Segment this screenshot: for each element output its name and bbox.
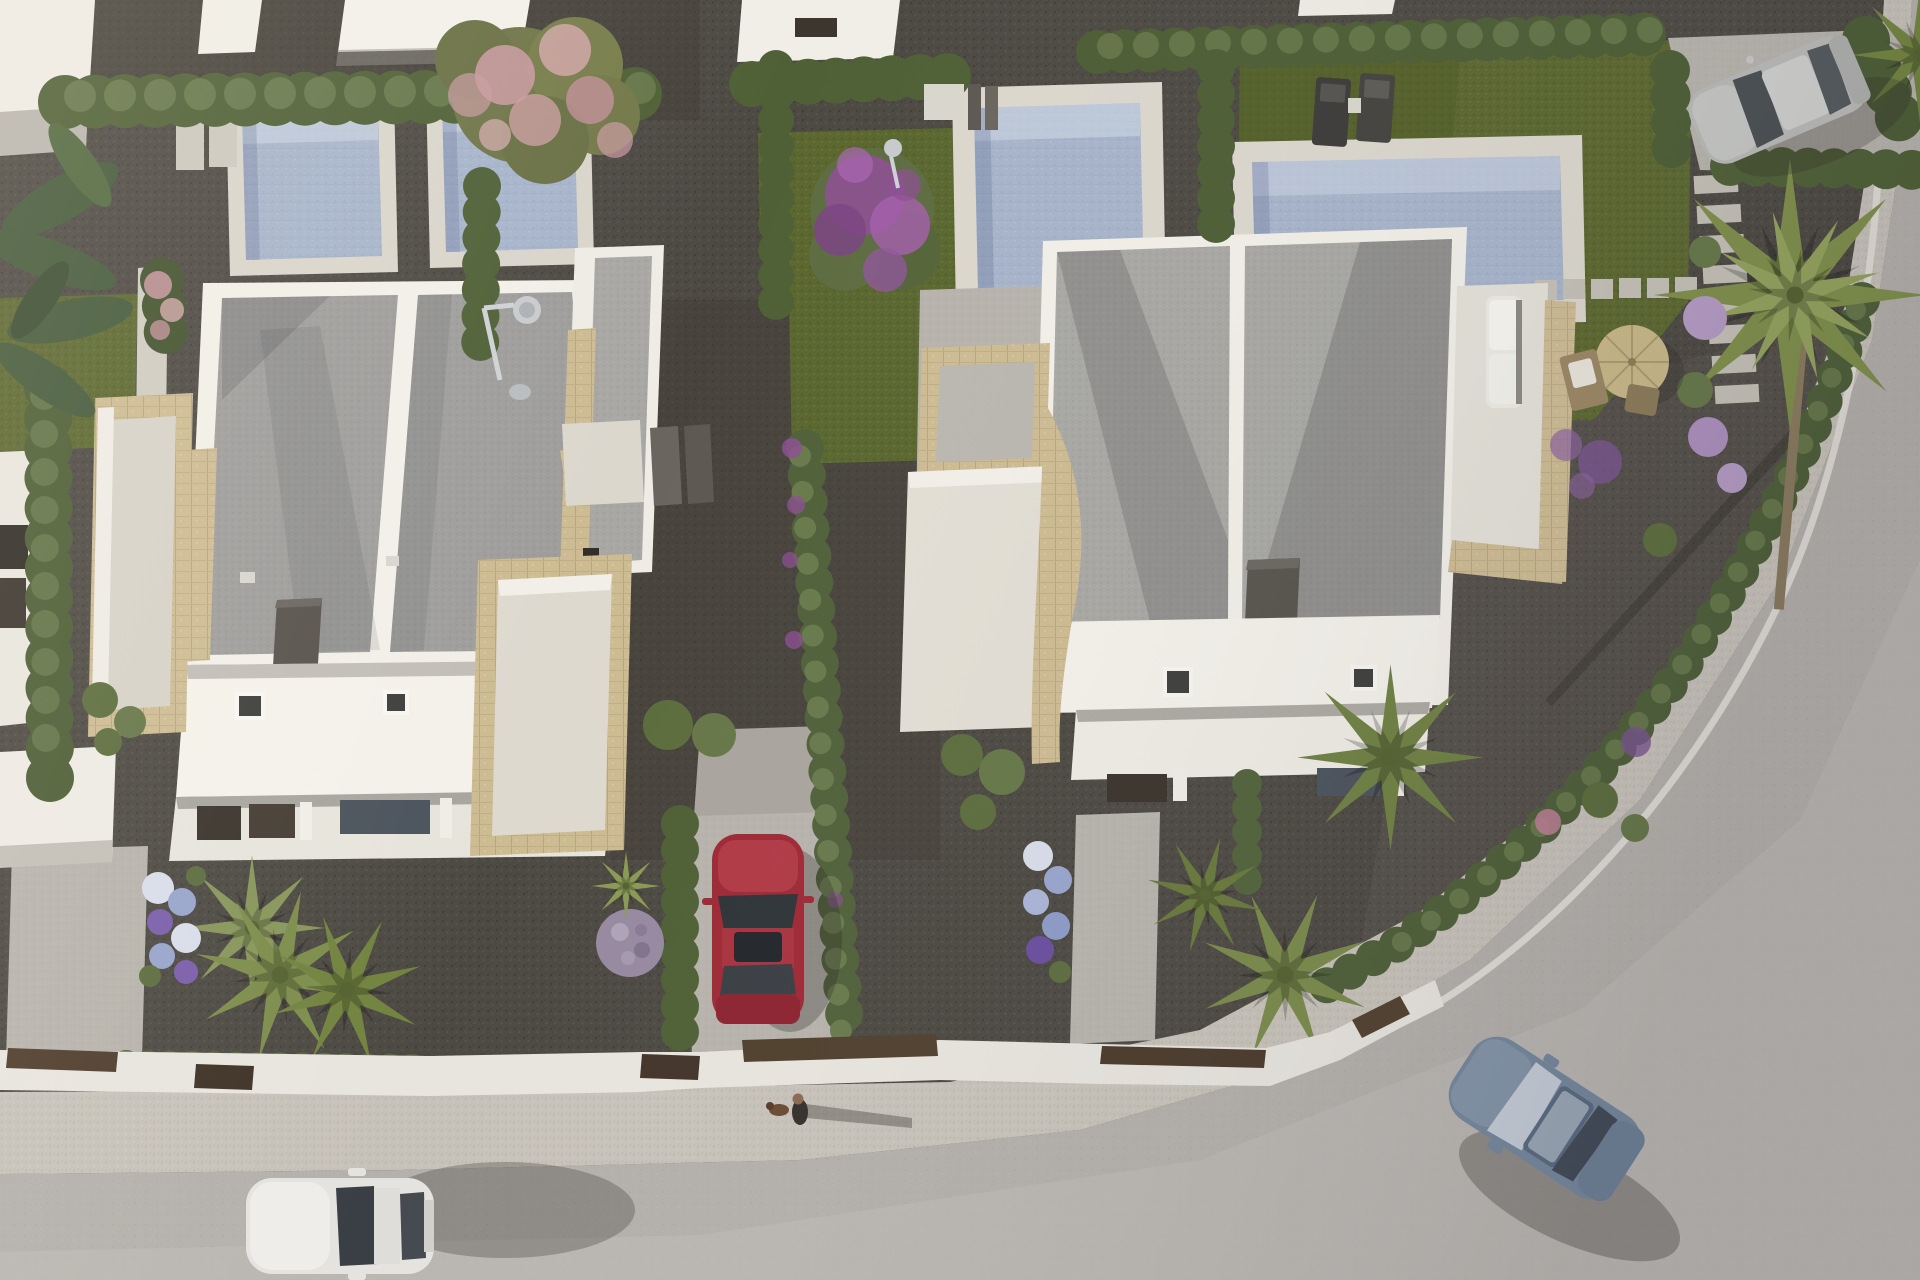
sunlight-overlay	[0, 0, 1920, 1280]
aerial-render	[0, 0, 1920, 1280]
render-canvas	[0, 0, 1920, 1280]
